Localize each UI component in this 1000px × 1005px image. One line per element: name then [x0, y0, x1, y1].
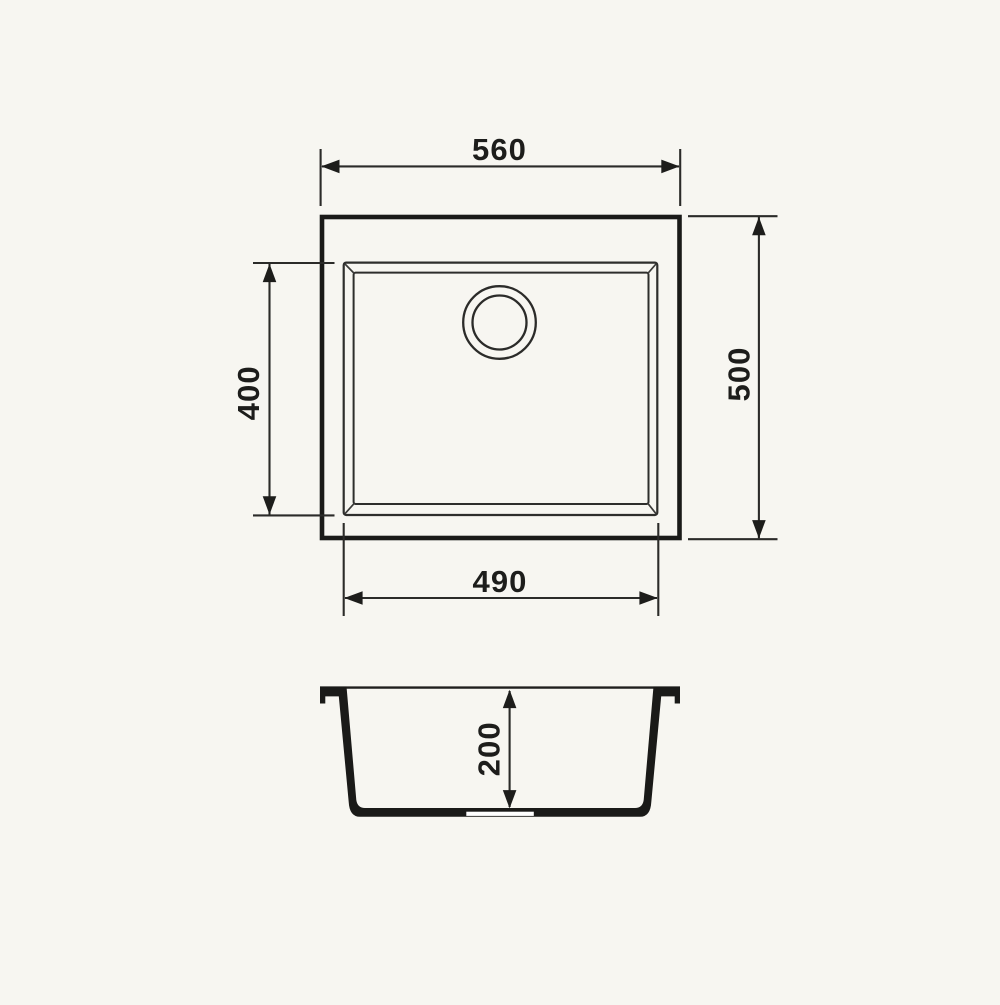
svg-text:560: 560 — [472, 132, 527, 167]
svg-text:490: 490 — [472, 564, 527, 599]
svg-text:200: 200 — [472, 721, 507, 776]
svg-text:400: 400 — [231, 365, 266, 420]
svg-text:500: 500 — [721, 346, 756, 401]
